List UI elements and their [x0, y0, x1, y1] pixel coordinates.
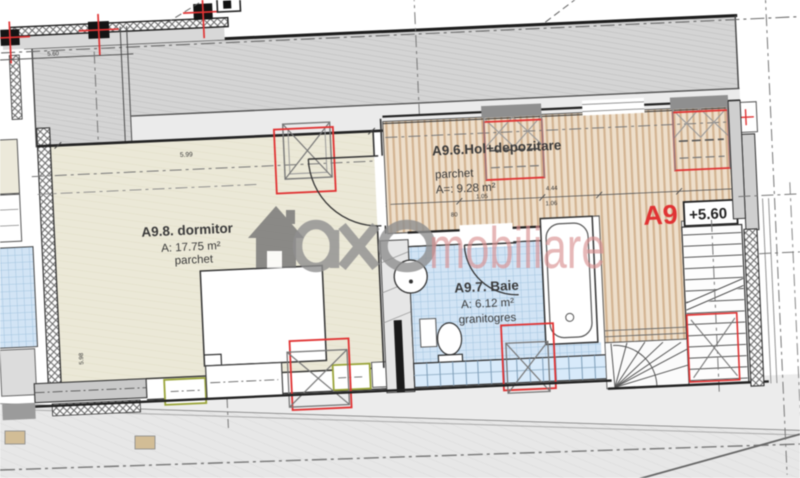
svg-text:5.99: 5.99: [180, 151, 193, 159]
svg-text:1.06: 1.06: [545, 201, 558, 208]
svg-text:parchet: parchet: [175, 253, 215, 267]
svg-text:A: 6.12 m²: A: 6.12 m²: [461, 297, 515, 311]
svg-text:+5.60: +5.60: [689, 205, 728, 224]
svg-text:parchet: parchet: [435, 168, 475, 182]
svg-text:mobiliare: mobiliare: [429, 216, 605, 280]
svg-text:5.98: 5.98: [79, 352, 86, 365]
svg-text:5.60: 5.60: [47, 51, 60, 58]
svg-text:1.05: 1.05: [476, 194, 489, 201]
svg-text:A9: A9: [643, 199, 679, 231]
svg-text:4.44: 4.44: [546, 186, 559, 193]
